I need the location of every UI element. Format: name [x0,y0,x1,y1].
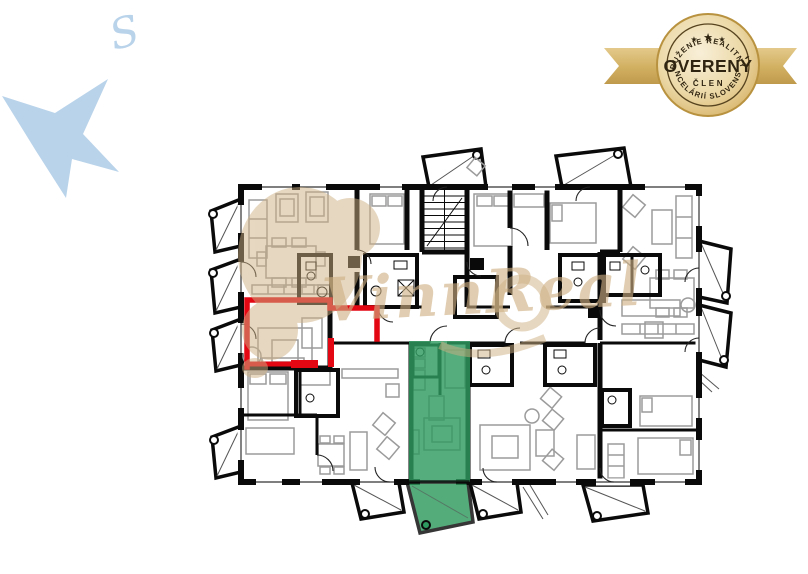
certification-badge: ZDRUŽENIE REALITNÝCH KANCELÁRIÍ SLOVENSK… [595,3,808,128]
badge-subtitle: ČLEN [693,79,725,88]
page: VinnReal S ZDRUŽENIE REALITNÝCH [0,0,808,574]
green-unit-balcony[interactable] [407,482,473,533]
star-icon: ★ [703,32,713,44]
compass [0,10,170,220]
green-selected-unit[interactable] [407,341,473,533]
compass-star-icon [2,79,119,198]
star-icon: ★ [690,35,697,44]
star-icon: ★ [718,35,725,44]
badge-title: OVERENÝ [663,55,752,76]
